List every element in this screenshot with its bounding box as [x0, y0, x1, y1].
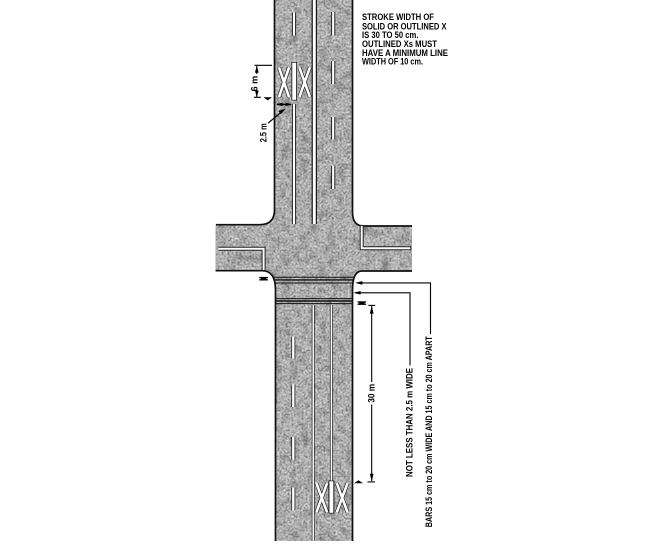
svg-text:BARS 15 cm to 20 cm WIDE AND 1: BARS 15 cm to 20 cm WIDE AND 15 cm to 20…	[424, 336, 435, 527]
svg-text:2.5 m: 2.5 m	[258, 123, 269, 142]
svg-text:NOT LESS THAN 2.5 m WIDE: NOT LESS THAN 2.5 m WIDE	[405, 368, 416, 477]
svg-text:30 m: 30 m	[367, 384, 378, 403]
svg-text:WIDTH OF 10 cm.: WIDTH OF 10 cm.	[362, 57, 423, 68]
svg-text:6 m: 6 m	[250, 76, 261, 92]
